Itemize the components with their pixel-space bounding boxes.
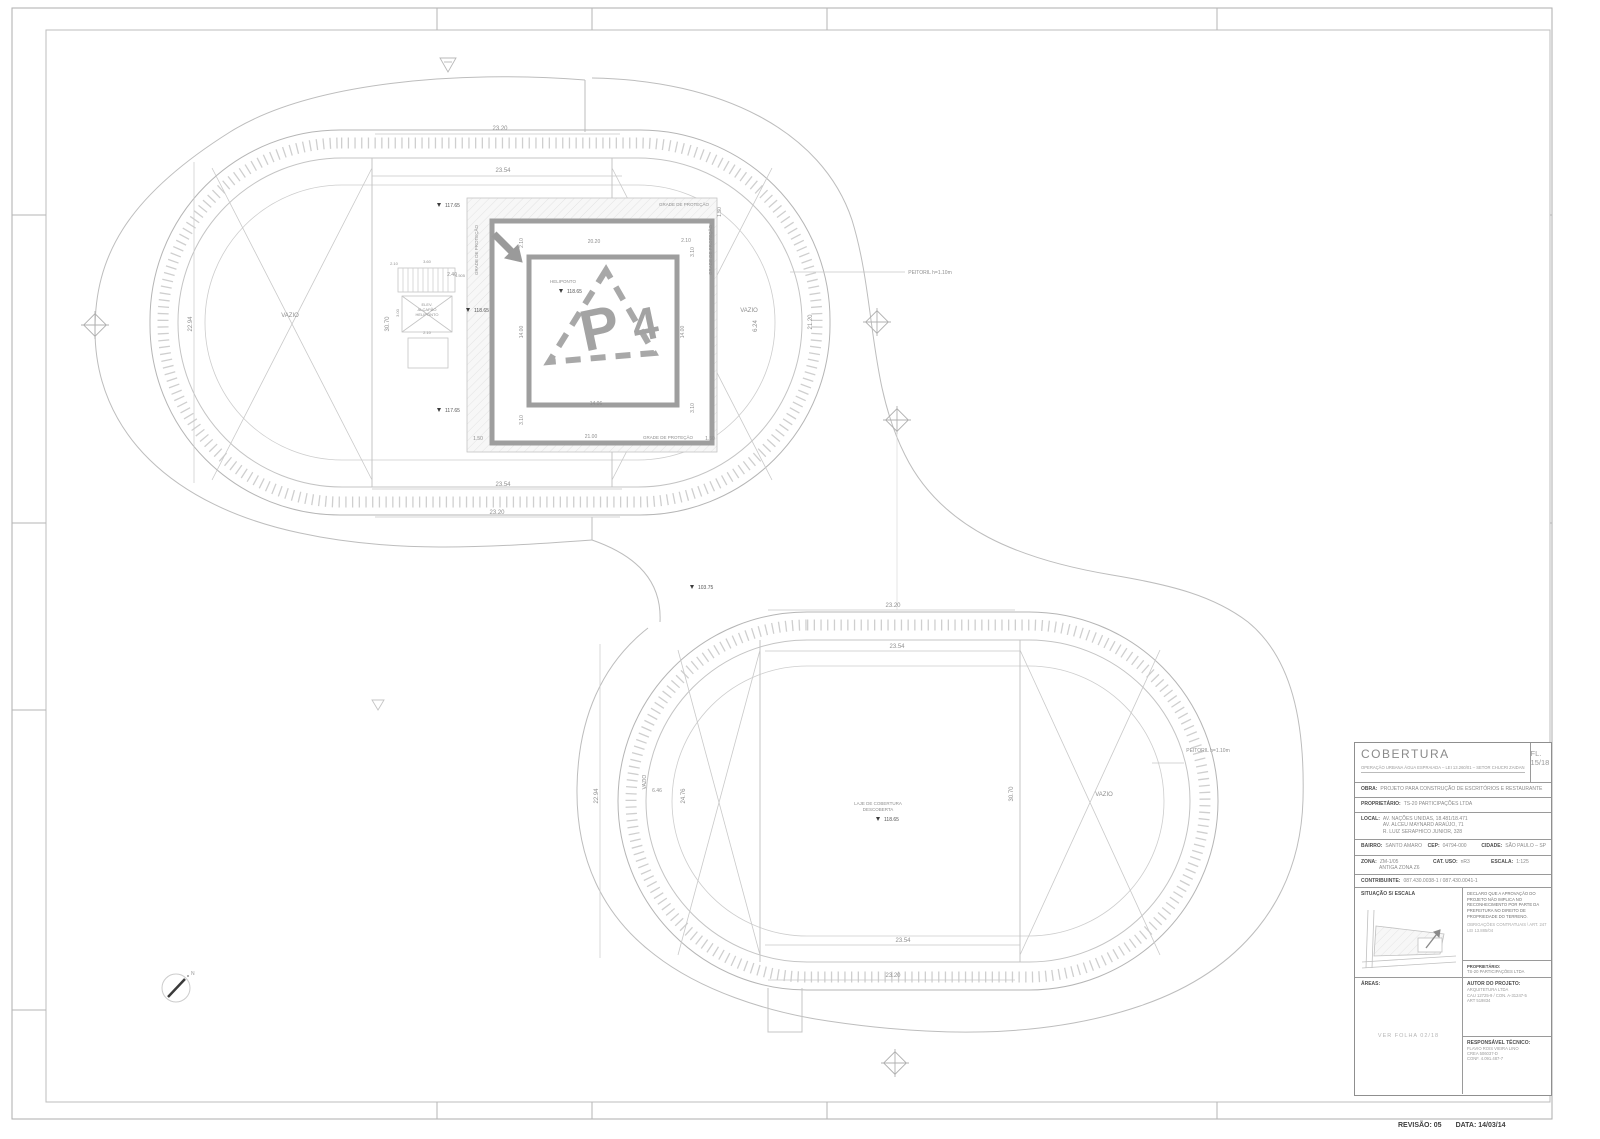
- plan-label: 117.65: [445, 203, 460, 209]
- local-value: AV. NAÇÕES UNIDAS, 18.481/18.471AV. ALCE…: [1383, 816, 1468, 837]
- cat-uso-label: CAT. USO:: [1433, 859, 1458, 865]
- declaracao-text: DECLARO QUE A APROVAÇÃO DO PROJETO NÃO I…: [1467, 891, 1547, 919]
- cat-uso-value: nR3: [1461, 859, 1470, 865]
- contribuinte-value: 087.430.0038-1 / 087.430.0041-1: [1403, 878, 1477, 885]
- plan-label: 23.54: [495, 482, 511, 488]
- assinatura-proprietario-label: PROPRIETÁRIO:: [1467, 964, 1500, 969]
- plan-label: 14.06: [590, 401, 603, 407]
- cep-value: 04794-000: [1443, 843, 1467, 849]
- plan-label: 2.10: [681, 238, 691, 244]
- sheet-title: COBERTURA: [1361, 747, 1525, 762]
- areas-reference: VER FOLHA 02/18: [1355, 1033, 1462, 1040]
- plan-label: 30.70: [385, 316, 391, 332]
- plan-label: 22.94: [188, 316, 194, 332]
- contribuinte-label: CONTRIBUINTE:: [1361, 878, 1400, 885]
- autor-lines: ARQUITETURA LTDACAU 12725-9 / CON. A-312…: [1467, 987, 1547, 1003]
- plan-label: 118.65: [567, 289, 582, 295]
- plan-label: 23.20: [885, 973, 901, 979]
- escala-value: 1:125: [1516, 859, 1529, 865]
- plan-label: 21.20: [808, 314, 814, 330]
- plan-label: 3.60: [423, 259, 432, 264]
- site-location-map: [1356, 904, 1462, 974]
- helipad: P 4: [467, 198, 717, 452]
- level-marker-icon: [437, 408, 441, 412]
- plan-label: 2.10: [519, 238, 525, 248]
- plan-label: 103.75: [698, 585, 714, 591]
- plan-label: DESCOBERTA: [863, 807, 894, 812]
- plan-label: 118.65: [884, 817, 899, 823]
- plan-label: 3.10: [690, 247, 696, 257]
- plan-label: LAJE DE COBERTURA: [854, 801, 902, 806]
- plan-label: 1.50: [473, 436, 483, 442]
- plan-label: 2.10: [423, 330, 432, 335]
- plan-label: 3.10: [519, 415, 525, 425]
- plan-label: 117.65: [445, 408, 460, 414]
- plan-label: 1.505: [455, 273, 466, 278]
- plan-label: 3.00: [395, 308, 400, 317]
- plan-label: 23.54: [889, 644, 905, 650]
- bairro-label: BAIRRO:: [1361, 843, 1382, 849]
- plan-label: 24.76: [681, 788, 687, 804]
- obra-label: OBRA:: [1361, 786, 1377, 795]
- zona2-value: ANTIGA ZONA Z6: [1379, 865, 1420, 871]
- benchmark-marker: [440, 58, 456, 72]
- plan-label: 22.94: [594, 788, 600, 804]
- plan-label: GRADE DE PROTEÇÃO: [659, 201, 710, 207]
- plan-label: 14.00: [680, 326, 686, 339]
- plan-label: GRADE DE PROTEÇÃO: [473, 225, 479, 276]
- revision-value: REVISÃO: 05: [1398, 1122, 1442, 1129]
- plan-labels: 23.2023.5423.5423.2022.9430.7021.206.24V…: [188, 126, 1230, 979]
- plan-label: 23.20: [489, 510, 505, 516]
- plan-label: 2.10: [390, 261, 399, 266]
- plan-label: 14.00: [519, 326, 525, 339]
- zona-value: ZM-1/05: [1380, 859, 1399, 865]
- plan-label: GRADE DE PROTEÇÃO: [643, 434, 694, 440]
- proprietario-value: TS-20 PARTICIPAÇÕES LTDA: [1404, 801, 1473, 810]
- plan-label: VAZIO: [281, 313, 299, 319]
- north-compass-icon: N: [162, 971, 195, 1002]
- areas-label: ÁREAS:: [1355, 978, 1459, 989]
- plan-label: 23.54: [895, 938, 911, 944]
- obra-value: PROJETO PARA CONSTRUÇÃO DE ESCRITÓRIOS E…: [1380, 786, 1542, 795]
- plan-label: 3.10: [690, 403, 696, 413]
- plan-label: 23.54: [495, 168, 511, 174]
- proprietario-label: PROPRIETÁRIO:: [1361, 801, 1401, 810]
- sheet-subtitle: OPERAÇÃO URBANA ÁGUA ESPRAIADA – LEI 13.…: [1361, 765, 1525, 773]
- plan-label: 1.50: [717, 207, 723, 217]
- local-label: LOCAL:: [1361, 816, 1380, 837]
- plan-label: PEITORIL h=1.10m: [908, 270, 952, 276]
- plan-label: 1.50: [705, 436, 715, 442]
- revision-bar: REVISÃO: 05 DATA: 14/03/14: [1398, 1122, 1558, 1129]
- plan-label: PEITORIL h=1.10m: [1186, 748, 1230, 754]
- cidade-value: SÃO PAULO – SP: [1505, 843, 1546, 849]
- plan-label: 6.24: [753, 320, 759, 332]
- plan-label: 118.65: [474, 308, 489, 314]
- plan-label: VAZIO: [740, 308, 758, 314]
- autor-label: AUTOR DO PROJETO:: [1467, 981, 1520, 987]
- level-marker-icon: [437, 203, 441, 207]
- plan-label: 23.20: [885, 603, 901, 609]
- drawing-sheet: P 4 N: [0, 0, 1600, 1139]
- resp-tecnico-lines: FLAVIO ROIS VIEIRA LINOCREA 506037-DCONF…: [1467, 1046, 1547, 1062]
- sheet-number: FL. 15/18: [1531, 743, 1551, 782]
- plan-label: 20.20: [588, 239, 601, 245]
- escala-label: ESCALA:: [1491, 859, 1513, 865]
- cidade-label: CIDADE:: [1481, 843, 1502, 849]
- plan-label: VAZIO: [642, 775, 648, 790]
- svg-text:N: N: [191, 971, 195, 977]
- plan-label: 23.20: [492, 126, 508, 132]
- situacao-label: SITUAÇÃO S/ ESCALA: [1355, 888, 1459, 899]
- stair-elevator-block: [398, 268, 455, 368]
- level-marker-icon: [876, 817, 880, 821]
- plan-label: 30.70: [1009, 786, 1015, 802]
- level-marker-icon: [690, 585, 694, 589]
- bairro-value: SANTO AMARO: [1385, 843, 1422, 849]
- zona-label: ZONA:: [1361, 859, 1377, 865]
- assinatura-proprietario-value: TS-20 PARTICIPAÇÕES LTDA: [1467, 969, 1524, 974]
- resp-tecnico-label: RESPONSÁVEL TÉCNICO:: [1467, 1040, 1530, 1046]
- plan-label: 6.46: [652, 788, 662, 794]
- plan-label: HELIPONTO: [550, 279, 576, 284]
- plan-label: 21.00: [585, 434, 598, 440]
- title-block: COBERTURA OPERAÇÃO URBANA ÁGUA ESPRAIADA…: [1354, 742, 1552, 1096]
- plan-label: VAZIO: [1095, 792, 1113, 798]
- plan-label: HELIPONTO: [415, 312, 438, 317]
- declaracao2-text: OBRIGAÇÕES CONTRATUAIS \ ART. 247 LEI 13…: [1467, 922, 1547, 933]
- plan-label: GRADE DE PROTEÇÃO: [707, 225, 713, 276]
- date-value: DATA: 14/03/14: [1456, 1122, 1506, 1129]
- cep-label: CEP:: [1428, 843, 1440, 849]
